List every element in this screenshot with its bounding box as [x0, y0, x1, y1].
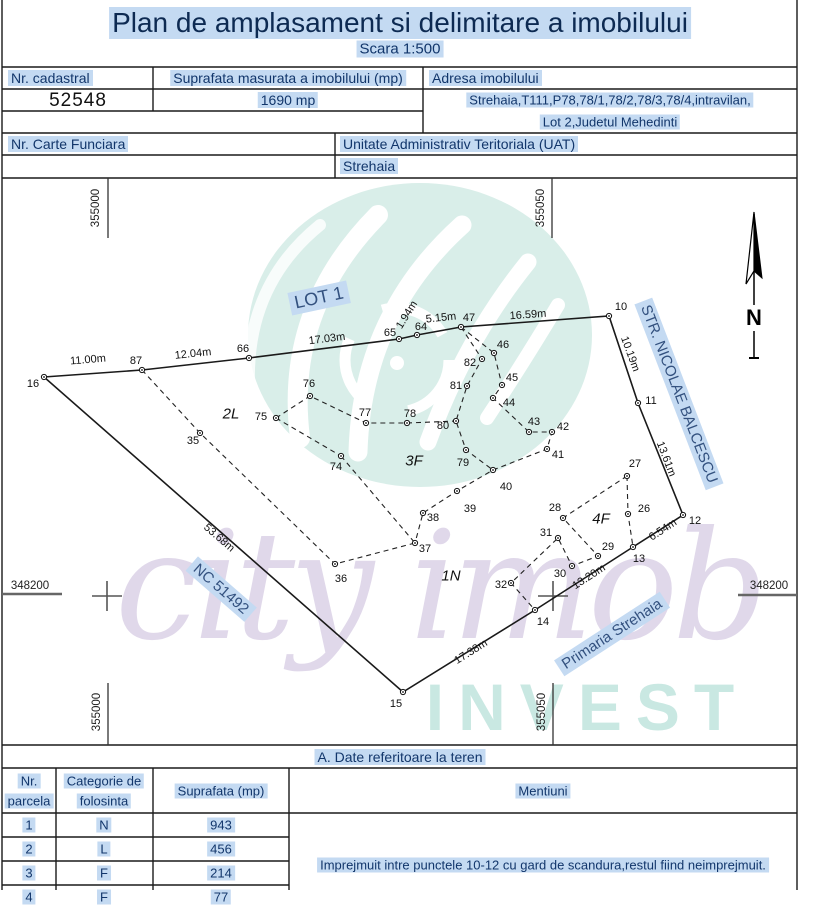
- north-letter: N: [744, 305, 764, 331]
- survey-point-dot-43: [528, 431, 530, 433]
- survey-point-dot-15: [402, 691, 404, 693]
- parcel-row-2-col-2: L: [97, 842, 110, 857]
- parcel-row-2-col-3: 456: [207, 842, 235, 857]
- survey-point-dot-42: [551, 431, 553, 433]
- grid-coordinate-label-2: 348200: [11, 580, 49, 592]
- adresa-label: Adresa imobilului: [429, 70, 542, 86]
- parcel-row-2-col-1: 2: [22, 842, 35, 857]
- col-nr-line2: parcela: [5, 794, 54, 809]
- point-label-28: 28: [549, 502, 561, 514]
- point-label-35: 35: [187, 435, 199, 447]
- region-label-2L: 2L: [223, 406, 240, 423]
- page-title: Plan de amplasament si delimitare a imob…: [109, 7, 691, 39]
- point-label-38: 38: [427, 512, 439, 524]
- grid-coordinate-label-3: 348200: [750, 580, 788, 592]
- point-label-80: 80: [437, 420, 449, 432]
- point-label-39: 39: [464, 503, 476, 515]
- terrain-section-title: A. Date referitoare la teren: [315, 749, 486, 765]
- survey-point-dot-66: [248, 357, 250, 359]
- survey-point-dot-78: [406, 422, 408, 424]
- suprafata-label: Suprafata masurata a imobilului (mp): [170, 70, 406, 86]
- survey-point-dot-14: [534, 609, 536, 611]
- survey-point-dot-32: [510, 582, 512, 584]
- point-label-82: 82: [464, 357, 476, 369]
- survey-point-dot-36: [334, 563, 336, 565]
- point-label-36: 36: [335, 573, 347, 585]
- region-label-3F: 3F: [405, 453, 423, 470]
- point-label-45: 45: [506, 372, 518, 384]
- survey-point-dot-35: [199, 432, 201, 434]
- survey-point-dot-65: [398, 338, 400, 340]
- adresa-value-line1: Strehaia,T111,P78,78/1,78/2,78/3,78/4,in…: [466, 93, 753, 108]
- point-label-30: 30: [554, 568, 566, 580]
- parcel-row-4-col-1: 4: [22, 890, 35, 905]
- north-arrow: [741, 212, 768, 358]
- col-suprafata: Suprafata (mp): [175, 784, 268, 799]
- parcel-row-1-col-2: N: [96, 818, 111, 833]
- col-mentiuni: Mentiuni: [515, 784, 570, 799]
- survey-point-dot-77: [365, 422, 367, 424]
- point-label-41: 41: [552, 449, 564, 461]
- survey-point-dot-38: [422, 512, 424, 514]
- point-label-15: 15: [390, 698, 402, 710]
- survey-point-dot-28: [562, 517, 564, 519]
- survey-point-dot-27: [626, 475, 628, 477]
- survey-point-dot-79: [465, 449, 467, 451]
- point-label-44: 44: [503, 397, 515, 409]
- point-label-11: 11: [645, 395, 656, 407]
- point-label-46: 46: [497, 339, 509, 351]
- point-label-42: 42: [557, 421, 569, 433]
- point-label-66: 66: [237, 343, 249, 355]
- suprafata-value: 1690 mp: [258, 92, 318, 108]
- point-label-76: 76: [303, 378, 315, 390]
- adresa-value-line2: Lot 2,Judetul Mehedinti: [540, 115, 680, 130]
- survey-point-dot-37: [414, 542, 416, 544]
- survey-point-dot-40: [492, 469, 494, 471]
- survey-point-dot-39: [456, 490, 458, 492]
- point-label-13: 13: [633, 553, 645, 565]
- nr-cadastral-label: Nr. cadastral: [8, 70, 93, 86]
- parcel-row-3-col-1: 3: [22, 866, 35, 881]
- grid-coordinate-label-1: 355050: [535, 189, 547, 227]
- point-label-16: 16: [27, 378, 39, 390]
- point-label-78: 78: [404, 408, 416, 420]
- survey-point-dot-44: [492, 397, 494, 399]
- mentiuni-text: Imprejmuit intre punctele 10-12 cu gard …: [317, 858, 769, 873]
- survey-point-dot-11: [637, 402, 639, 404]
- survey-point-dot-29: [597, 555, 599, 557]
- point-label-31: 31: [540, 527, 552, 539]
- survey-point-dot-12: [682, 514, 684, 516]
- point-label-14: 14: [537, 616, 549, 628]
- col-categorie-line1: Categorie de: [64, 774, 144, 789]
- distance-label-5: 16.59m: [509, 308, 546, 323]
- survey-point-dot-87: [141, 369, 143, 371]
- survey-point-dot-41: [546, 448, 548, 450]
- nr-cadastral-value: 52548: [49, 90, 107, 112]
- parcel-row-1-col-1: 1: [22, 818, 35, 833]
- grid-coordinate-label-5: 355050: [536, 693, 548, 731]
- region-label-4F: 4F: [592, 511, 610, 528]
- point-label-32: 32: [495, 579, 507, 591]
- survey-point-dot-31: [557, 537, 559, 539]
- point-label-81: 81: [450, 380, 462, 392]
- survey-point-dot-74: [340, 455, 342, 457]
- point-label-40: 40: [500, 481, 512, 493]
- point-label-37: 37: [419, 543, 431, 555]
- col-categorie-line2: folosinta: [77, 794, 131, 809]
- uat-value: Strehaia: [340, 158, 398, 174]
- cadastral-plan-document: city imob INVEST Plan de amplasament si …: [0, 0, 833, 890]
- region-label-1N: 1N: [441, 568, 460, 585]
- scale-label: Scara 1:500: [357, 41, 444, 58]
- survey-point-dot-13: [632, 546, 634, 548]
- survey-point-dot-46: [493, 352, 495, 354]
- survey-point-dot-80: [455, 420, 457, 422]
- grid-coordinate-label-0: 355000: [90, 189, 102, 227]
- survey-point-dot-16: [43, 376, 45, 378]
- survey-point-dot-81: [466, 385, 468, 387]
- point-label-79: 79: [457, 457, 469, 469]
- parcel-row-4-col-3: 77: [211, 890, 231, 905]
- survey-point-dot-76: [309, 395, 311, 397]
- uat-label: Unitate Administrativ Teritoriala (UAT): [340, 136, 578, 152]
- survey-point-dot-45: [501, 384, 503, 386]
- point-label-26: 26: [638, 503, 650, 515]
- survey-point-dot-30: [571, 565, 573, 567]
- point-label-43: 43: [528, 416, 540, 428]
- point-label-87: 87: [130, 355, 142, 367]
- carte-funciara-label: Nr. Carte Funciara: [8, 136, 128, 152]
- point-label-75: 75: [255, 411, 267, 423]
- survey-point-dot-10: [608, 315, 610, 317]
- survey-point-dot-47: [460, 326, 462, 328]
- parcel-row-1-col-3: 943: [207, 818, 235, 833]
- point-label-77: 77: [359, 407, 371, 419]
- point-label-65: 65: [384, 327, 396, 339]
- point-label-74: 74: [330, 461, 342, 473]
- parcel-row-3-col-3: 214: [207, 866, 235, 881]
- point-label-27: 27: [629, 458, 641, 470]
- survey-point-dot-82: [481, 358, 483, 360]
- point-label-10: 10: [615, 301, 627, 313]
- point-label-12: 12: [689, 515, 701, 527]
- point-label-29: 29: [602, 541, 614, 553]
- survey-point-dot-75: [275, 417, 277, 419]
- parcel-row-3-col-2: F: [97, 866, 111, 881]
- point-label-47: 47: [463, 312, 475, 324]
- grid-coordinate-label-4: 355000: [91, 693, 103, 731]
- survey-point-dot-64: [416, 334, 418, 336]
- survey-point-dot-26: [627, 513, 629, 515]
- parcel-row-4-col-2: F: [97, 890, 111, 905]
- col-nr-line1: Nr.: [18, 774, 41, 789]
